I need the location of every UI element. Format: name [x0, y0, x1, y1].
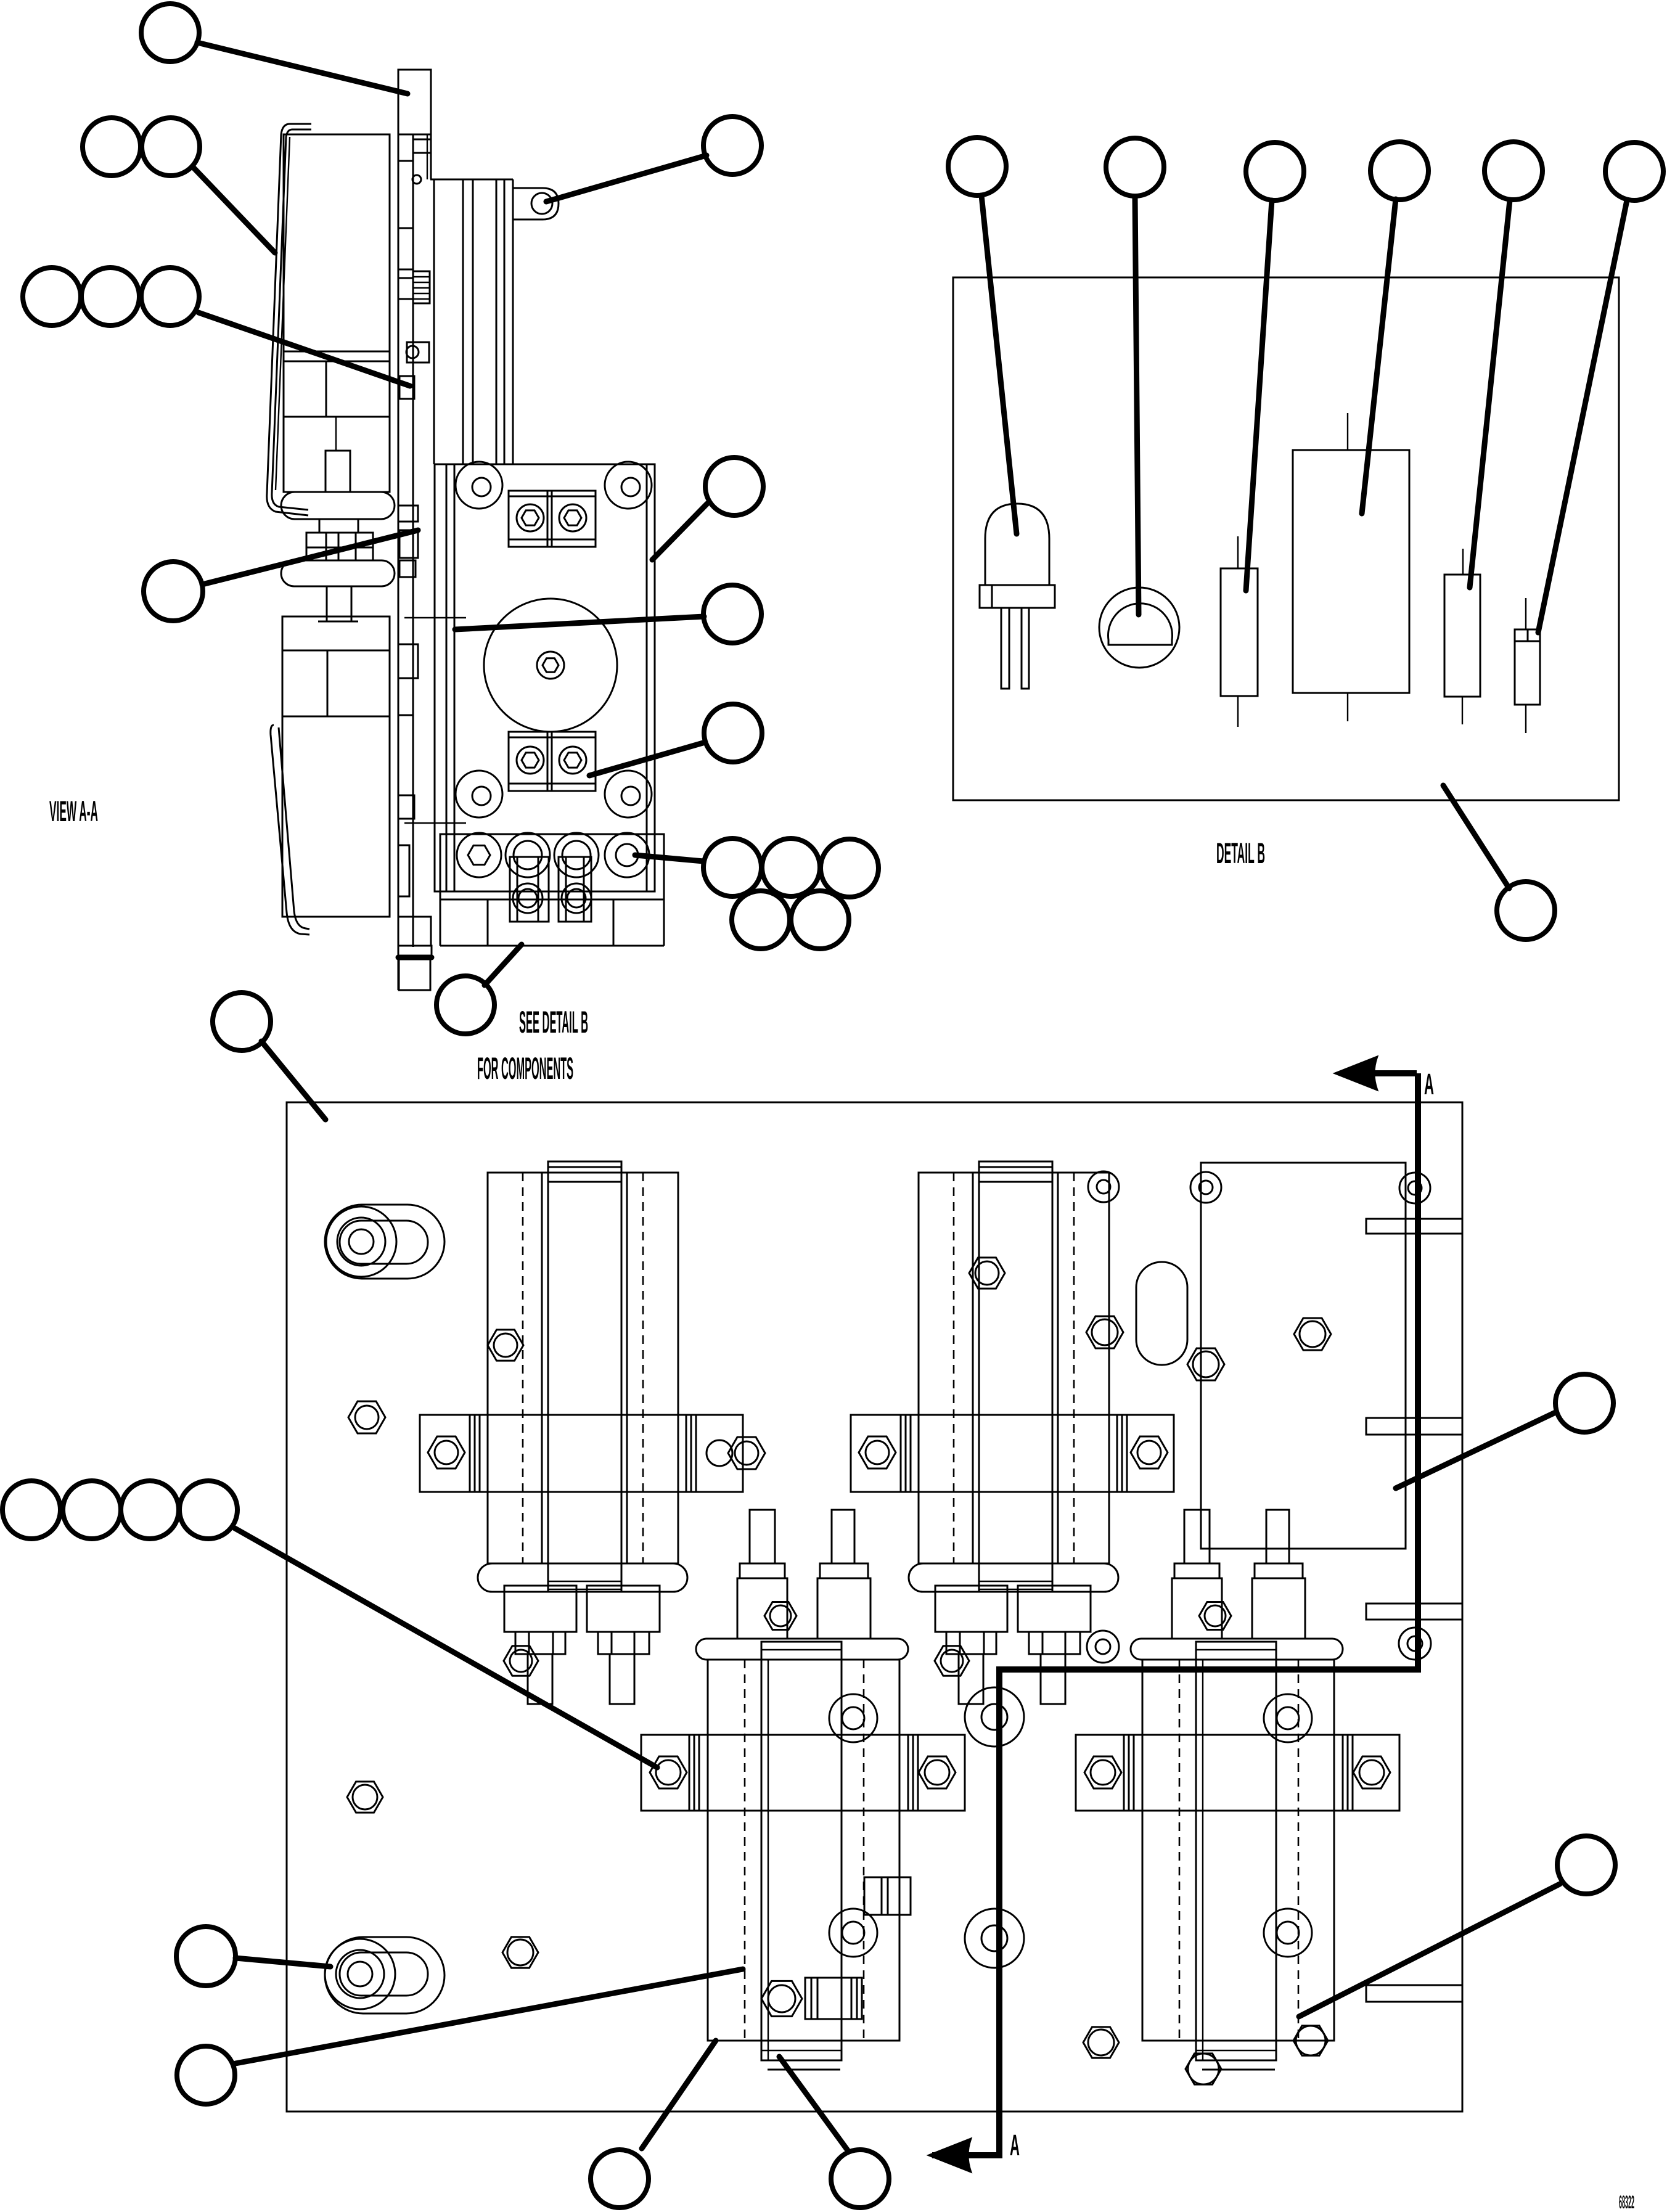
svg-text:VIEW A-A: VIEW A-A	[49, 795, 98, 827]
svg-text:DETAIL B: DETAIL B	[1216, 837, 1265, 869]
svg-text:FOR COMPONENTS: FOR COMPONENTS	[477, 1051, 573, 1086]
svg-text:A: A	[1424, 1068, 1434, 1101]
svg-text:68322: 68322	[1619, 2192, 1634, 2212]
svg-text:A: A	[1010, 2129, 1020, 2162]
svg-text:SEE DETAIL B: SEE DETAIL B	[519, 1005, 588, 1039]
